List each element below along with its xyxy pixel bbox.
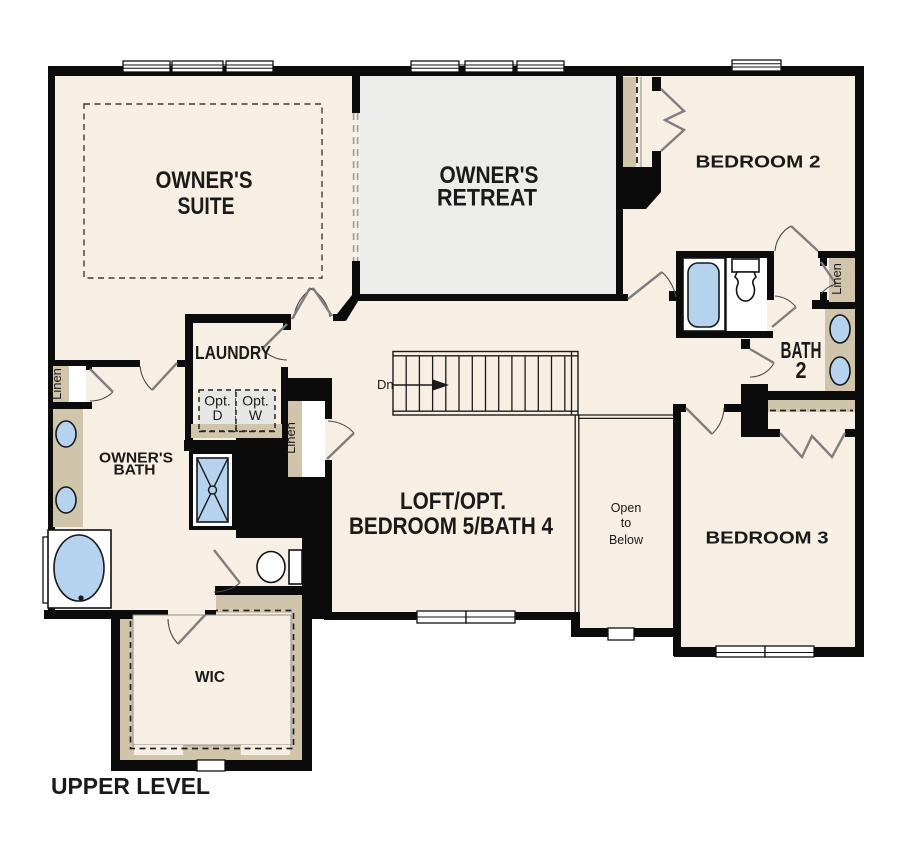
svg-text:Linen: Linen — [283, 422, 298, 454]
svg-text:BEDROOM 5/BATH 4: BEDROOM 5/BATH 4 — [349, 513, 554, 540]
svg-text:Open: Open — [611, 501, 642, 515]
svg-text:LOFT/OPT.: LOFT/OPT. — [400, 488, 506, 515]
svg-text:to: to — [621, 516, 631, 530]
svg-text:WIC: WIC — [195, 669, 225, 686]
svg-text:Linen: Linen — [829, 263, 844, 295]
svg-text:2: 2 — [796, 357, 807, 383]
svg-text:OWNER'S: OWNER'S — [156, 167, 253, 194]
svg-text:Linen: Linen — [49, 368, 64, 400]
svg-text:BEDROOM 3: BEDROOM 3 — [706, 528, 829, 548]
svg-text:BATH: BATH — [114, 462, 156, 479]
svg-text:SUITE: SUITE — [178, 193, 235, 220]
svg-text:Dn: Dn — [377, 377, 394, 392]
svg-text:D: D — [212, 407, 222, 423]
svg-text:LAUNDRY: LAUNDRY — [195, 343, 271, 363]
svg-text:BEDROOM 2: BEDROOM 2 — [696, 152, 821, 172]
svg-text:RETREAT: RETREAT — [437, 185, 537, 212]
svg-text:Below: Below — [609, 533, 644, 547]
svg-text:UPPER LEVEL: UPPER LEVEL — [51, 773, 210, 799]
svg-text:W: W — [249, 407, 263, 423]
